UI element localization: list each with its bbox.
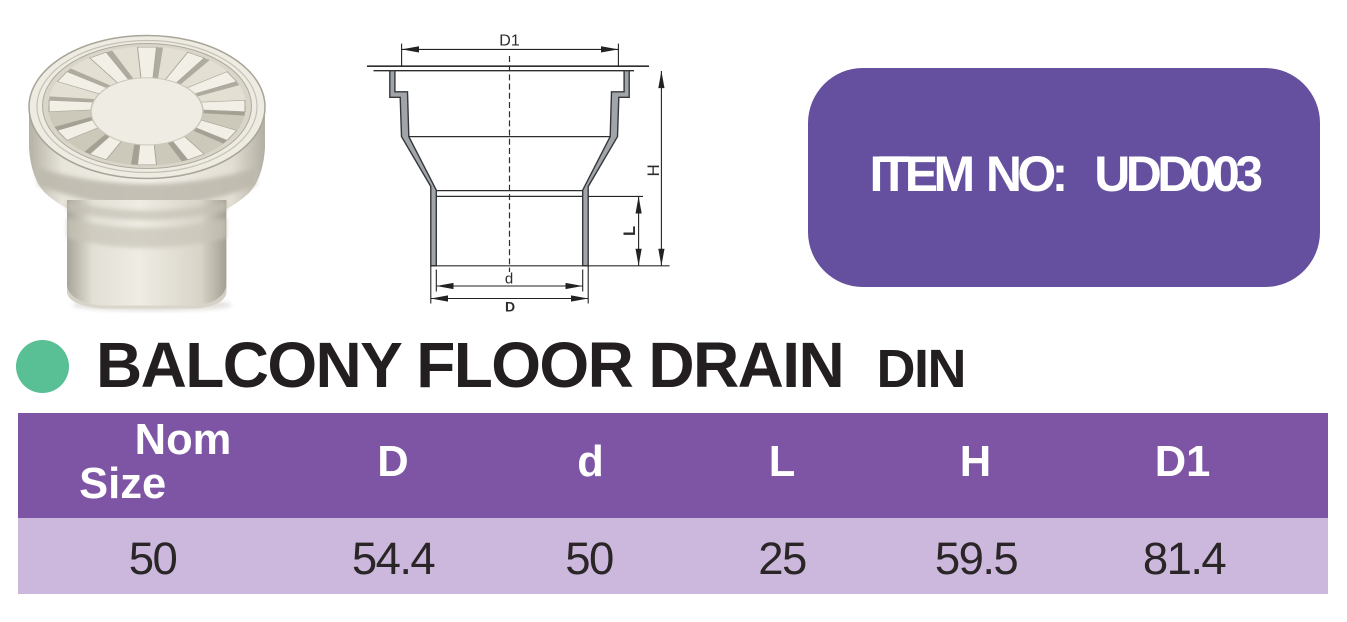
svg-text:d: d bbox=[505, 270, 513, 287]
svg-text:H: H bbox=[644, 164, 663, 176]
svg-text:D1: D1 bbox=[499, 32, 520, 49]
svg-text:L: L bbox=[621, 226, 639, 236]
svg-text:D: D bbox=[505, 299, 515, 315]
